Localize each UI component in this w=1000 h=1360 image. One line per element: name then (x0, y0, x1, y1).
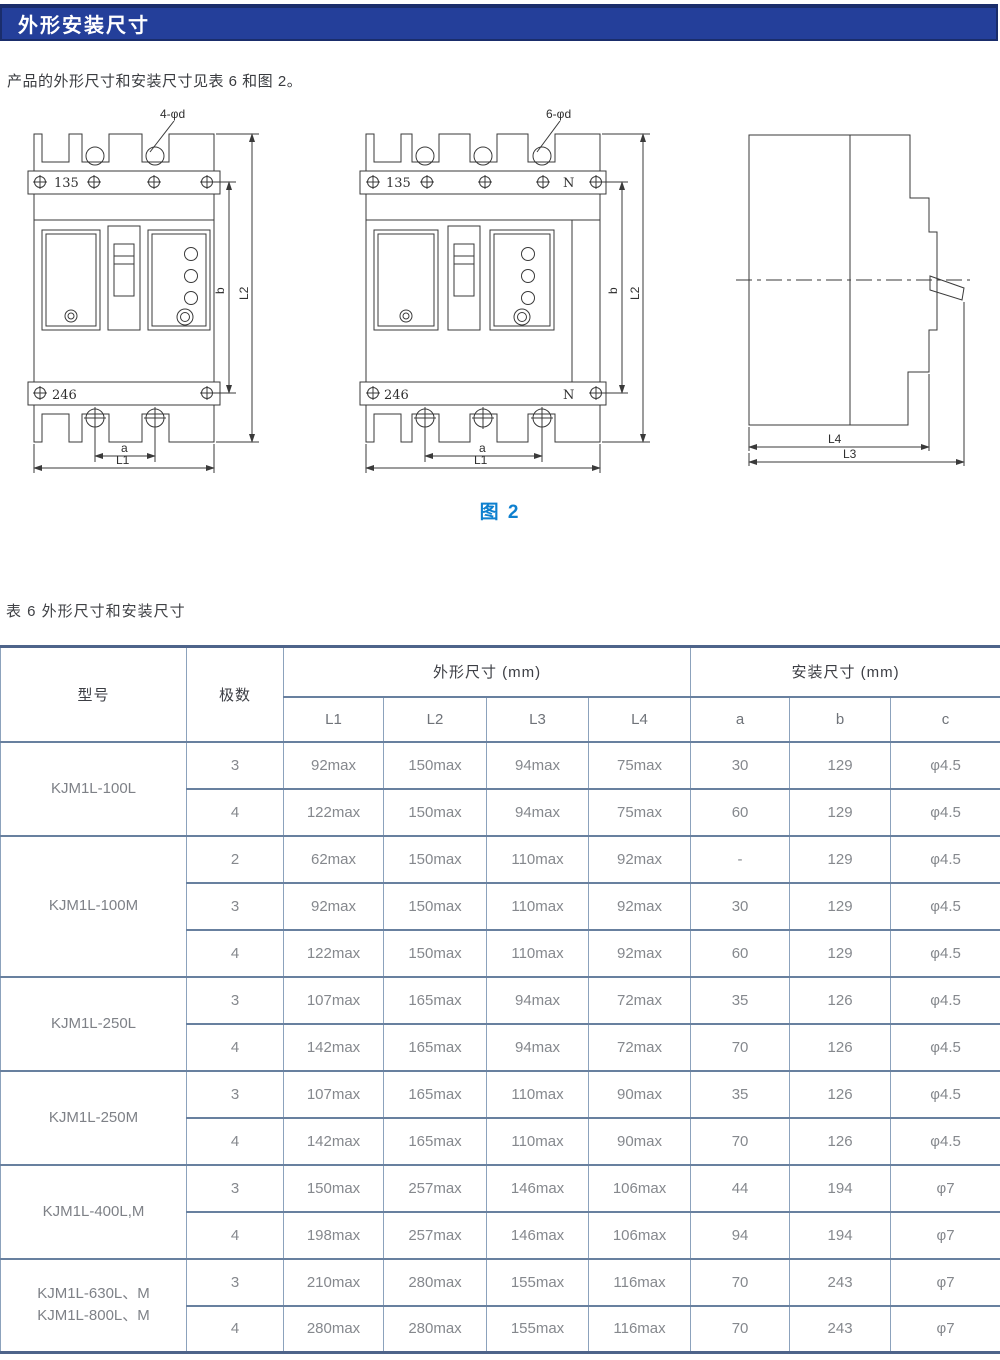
group-header-outline: 外形尺寸 (mm) (284, 647, 691, 697)
cell-b: 129 (790, 930, 891, 977)
catalog-page: 外形安装尺寸 产品的外形尺寸和安装尺寸见表 6 和图 2。 135 (0, 0, 1000, 1360)
cell-l1: 198max (284, 1212, 384, 1259)
cell-l2: 150max (384, 836, 487, 883)
cell-poles: 2 (187, 836, 284, 883)
cell-a: 70 (691, 1259, 790, 1306)
cell-l2: 257max (384, 1212, 487, 1259)
cell-l3: 155max (487, 1306, 589, 1353)
group-header-mounting: 安装尺寸 (mm) (691, 647, 1000, 697)
cell-c: φ4.5 (891, 1118, 1000, 1165)
table-row: KJM1L-100L 3 92max 150max 94max 75max 30… (1, 742, 1000, 789)
cell-a: 30 (691, 742, 790, 789)
cell-poles: 3 (187, 742, 284, 789)
cell-l4: 75max (589, 742, 691, 789)
cell-l4: 90max (589, 1071, 691, 1118)
col-header-poles: 极数 (187, 647, 284, 742)
side-view-drawing: L4 L3 (728, 120, 978, 475)
cell-l1: 122max (284, 930, 384, 977)
cell-l4: 106max (589, 1212, 691, 1259)
cell-c: φ7 (891, 1212, 1000, 1259)
col-header-model: 型号 (1, 647, 187, 742)
cell-l4: 72max (589, 1024, 691, 1071)
dimensions-table: 型号 极数 外形尺寸 (mm) 安装尺寸 (mm) L1 L2 L3 L4 a … (0, 645, 1000, 1354)
bottom-terminal-screws (414, 407, 553, 429)
cell-c: φ7 (891, 1259, 1000, 1306)
front-view-4pole-drawing: 135 N 246 N 6-φd b L2 (356, 104, 656, 474)
cell-poles: 3 (187, 977, 284, 1024)
cell-b: 243 (790, 1259, 891, 1306)
cell-a: 35 (691, 977, 790, 1024)
cell-l4: 90max (589, 1118, 691, 1165)
model-cell: KJM1L-250L (1, 977, 187, 1071)
cell-l4: 75max (589, 789, 691, 836)
cell-b: 194 (790, 1212, 891, 1259)
cell-l2: 150max (384, 883, 487, 930)
figure-caption: 图 2 (0, 497, 1000, 524)
cell-a: 70 (691, 1118, 790, 1165)
model-cell: KJM1L-400L,M (1, 1165, 187, 1259)
dim-label-l4: L4 (828, 432, 842, 446)
bottom-terminal-screws (84, 407, 166, 429)
cell-a: 44 (691, 1165, 790, 1212)
cell-l1: 62max (284, 836, 384, 883)
dim-label-b: b (606, 287, 620, 294)
col-header-l1: L1 (284, 697, 384, 742)
cell-c: φ4.5 (891, 742, 1000, 789)
cell-l2: 150max (384, 742, 487, 789)
cell-poles: 4 (187, 1118, 284, 1165)
cell-poles: 3 (187, 1071, 284, 1118)
col-header-c: c (891, 697, 1000, 742)
cell-l2: 150max (384, 930, 487, 977)
cell-b: 129 (790, 742, 891, 789)
cell-c: φ4.5 (891, 789, 1000, 836)
neutral-bottom-label: N (563, 388, 574, 403)
cell-l2: 280max (384, 1306, 487, 1353)
cell-l2: 165max (384, 977, 487, 1024)
table-row: KJM1L-250L 3 107max 165max 94max 72max 3… (1, 977, 1000, 1024)
cell-l1: 150max (284, 1165, 384, 1212)
cell-l4: 92max (589, 883, 691, 930)
cell-c: φ7 (891, 1306, 1000, 1353)
cell-c: φ4.5 (891, 1071, 1000, 1118)
cell-poles: 4 (187, 1024, 284, 1071)
cell-b: 129 (790, 883, 891, 930)
cell-l1: 107max (284, 1071, 384, 1118)
cell-l3: 155max (487, 1259, 589, 1306)
cell-poles: 4 (187, 1212, 284, 1259)
model-cell: KJM1L-100L (1, 742, 187, 836)
cell-c: φ4.5 (891, 836, 1000, 883)
top-width-label: 135 (386, 176, 411, 191)
cell-l1: 142max (284, 1118, 384, 1165)
cell-poles: 4 (187, 1306, 284, 1353)
dim-label-l2: L2 (628, 286, 642, 300)
col-header-l2: L2 (384, 697, 487, 742)
cell-l3: 110max (487, 1118, 589, 1165)
cell-l2: 165max (384, 1024, 487, 1071)
dim-label-l3: L3 (843, 447, 857, 461)
cell-l2: 257max (384, 1165, 487, 1212)
dim-label-l1: L1 (116, 453, 130, 467)
cell-poles: 3 (187, 883, 284, 930)
cell-b: 194 (790, 1165, 891, 1212)
model-cell: KJM1L-630L、M KJM1L-800L、M (1, 1259, 187, 1353)
cell-l3: 110max (487, 930, 589, 977)
cell-l1: 210max (284, 1259, 384, 1306)
cell-a: 70 (691, 1024, 790, 1071)
cell-b: 126 (790, 977, 891, 1024)
intro-paragraph: 产品的外形尺寸和安装尺寸见表 6 和图 2。 (7, 70, 302, 91)
cell-l1: 92max (284, 883, 384, 930)
cell-poles: 4 (187, 930, 284, 977)
cell-l3: 146max (487, 1212, 589, 1259)
cell-poles: 4 (187, 789, 284, 836)
cell-l4: 116max (589, 1306, 691, 1353)
cell-l1: 92max (284, 742, 384, 789)
cell-a: 94 (691, 1212, 790, 1259)
cell-b: 126 (790, 1118, 891, 1165)
cell-a: 60 (691, 789, 790, 836)
cell-c: φ4.5 (891, 883, 1000, 930)
col-header-l4: L4 (589, 697, 691, 742)
table-row: KJM1L-400L,M 3 150max 257max 146max 106m… (1, 1165, 1000, 1212)
table-row: KJM1L-630L、M KJM1L-800L、M 3 210max 280ma… (1, 1259, 1000, 1306)
top-width-label: 135 (54, 176, 79, 191)
cell-c: φ4.5 (891, 977, 1000, 1024)
section-title: 外形安装尺寸 (18, 9, 150, 38)
cell-l2: 165max (384, 1071, 487, 1118)
model-cell: KJM1L-100M (1, 836, 187, 977)
cell-b: 126 (790, 1024, 891, 1071)
col-header-b: b (790, 697, 891, 742)
col-header-l3: L3 (487, 697, 589, 742)
cell-a: 30 (691, 883, 790, 930)
cell-l3: 110max (487, 1071, 589, 1118)
cell-a: 35 (691, 1071, 790, 1118)
front-view-3pole-drawing: 135 246 4-φd b L2 (24, 104, 269, 474)
cell-l1: 142max (284, 1024, 384, 1071)
cell-b: 243 (790, 1306, 891, 1353)
cell-l2: 280max (384, 1259, 487, 1306)
table-row: KJM1L-250M 3 107max 165max 110max 90max … (1, 1071, 1000, 1118)
cell-a: 70 (691, 1306, 790, 1353)
cell-l3: 110max (487, 836, 589, 883)
cell-l1: 107max (284, 977, 384, 1024)
cell-a: 60 (691, 930, 790, 977)
bottom-width-label: 246 (52, 388, 77, 403)
model-cell: KJM1L-250M (1, 1071, 187, 1165)
cell-b: 126 (790, 1071, 891, 1118)
dim-label-l2: L2 (237, 286, 251, 300)
table-row: KJM1L-100M 2 62max 150max 110max 92max -… (1, 836, 1000, 883)
cell-poles: 3 (187, 1259, 284, 1306)
cell-a: - (691, 836, 790, 883)
cell-l3: 94max (487, 1024, 589, 1071)
cell-l3: 146max (487, 1165, 589, 1212)
cell-c: φ7 (891, 1165, 1000, 1212)
neutral-top-label: N (563, 176, 574, 191)
cell-l3: 94max (487, 742, 589, 789)
dim-label-b: b (213, 287, 227, 294)
cell-l4: 92max (589, 930, 691, 977)
cell-l3: 110max (487, 883, 589, 930)
hole-callout-label: 4-φd (160, 107, 185, 121)
cell-l4: 92max (589, 836, 691, 883)
cell-l1: 122max (284, 789, 384, 836)
bottom-width-label: 246 (384, 388, 409, 403)
cell-c: φ4.5 (891, 1024, 1000, 1071)
cell-b: 129 (790, 836, 891, 883)
col-header-a: a (691, 697, 790, 742)
cell-l4: 106max (589, 1165, 691, 1212)
table-title: 表 6 外形尺寸和安装尺寸 (6, 600, 186, 621)
cell-l2: 165max (384, 1118, 487, 1165)
hole-callout-label: 6-φd (546, 107, 571, 121)
cell-l4: 72max (589, 977, 691, 1024)
cell-l3: 94max (487, 789, 589, 836)
dim-label-l1: L1 (474, 453, 488, 467)
cell-l4: 116max (589, 1259, 691, 1306)
cell-c: φ4.5 (891, 930, 1000, 977)
cell-l2: 150max (384, 789, 487, 836)
cell-poles: 3 (187, 1165, 284, 1212)
cell-l1: 280max (284, 1306, 384, 1353)
section-header-bar: 外形安装尺寸 (0, 4, 998, 41)
cell-l3: 94max (487, 977, 589, 1024)
cell-b: 129 (790, 789, 891, 836)
